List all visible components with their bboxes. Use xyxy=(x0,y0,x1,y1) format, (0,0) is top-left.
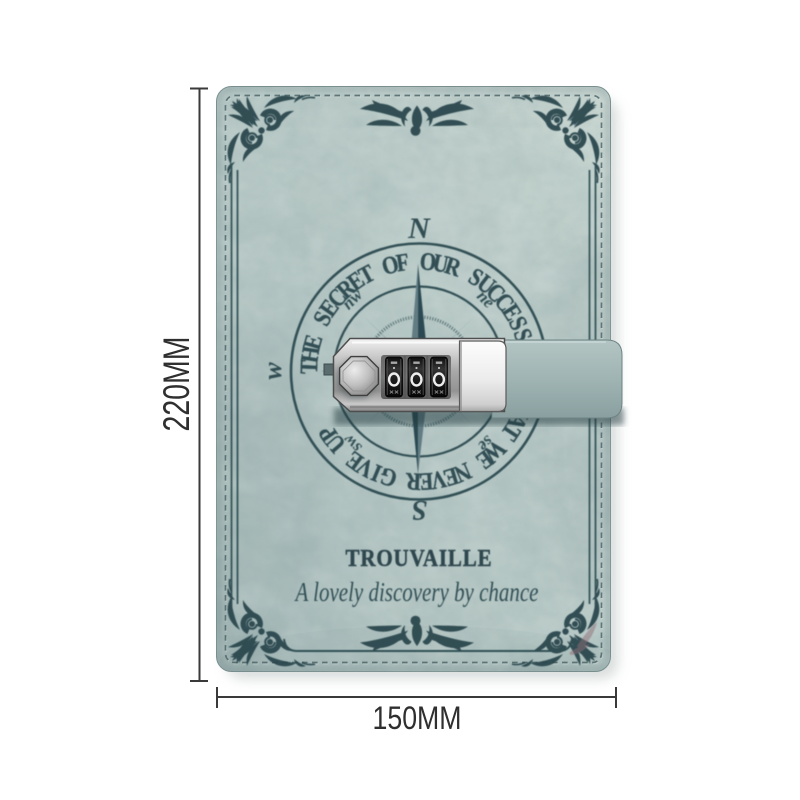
svg-text:w: w xyxy=(258,362,287,380)
svg-text:A lovely discovery by chance: A lovely discovery by chance xyxy=(294,577,539,607)
svg-text:220MM: 220MM xyxy=(156,337,197,432)
svg-text:N: N xyxy=(407,212,431,245)
svg-text:S: S xyxy=(412,494,428,525)
svg-text:TROUVAILLE: TROUVAILLE xyxy=(346,546,493,572)
svg-text:150MM: 150MM xyxy=(373,700,462,736)
svg-text:R: R xyxy=(405,468,422,497)
